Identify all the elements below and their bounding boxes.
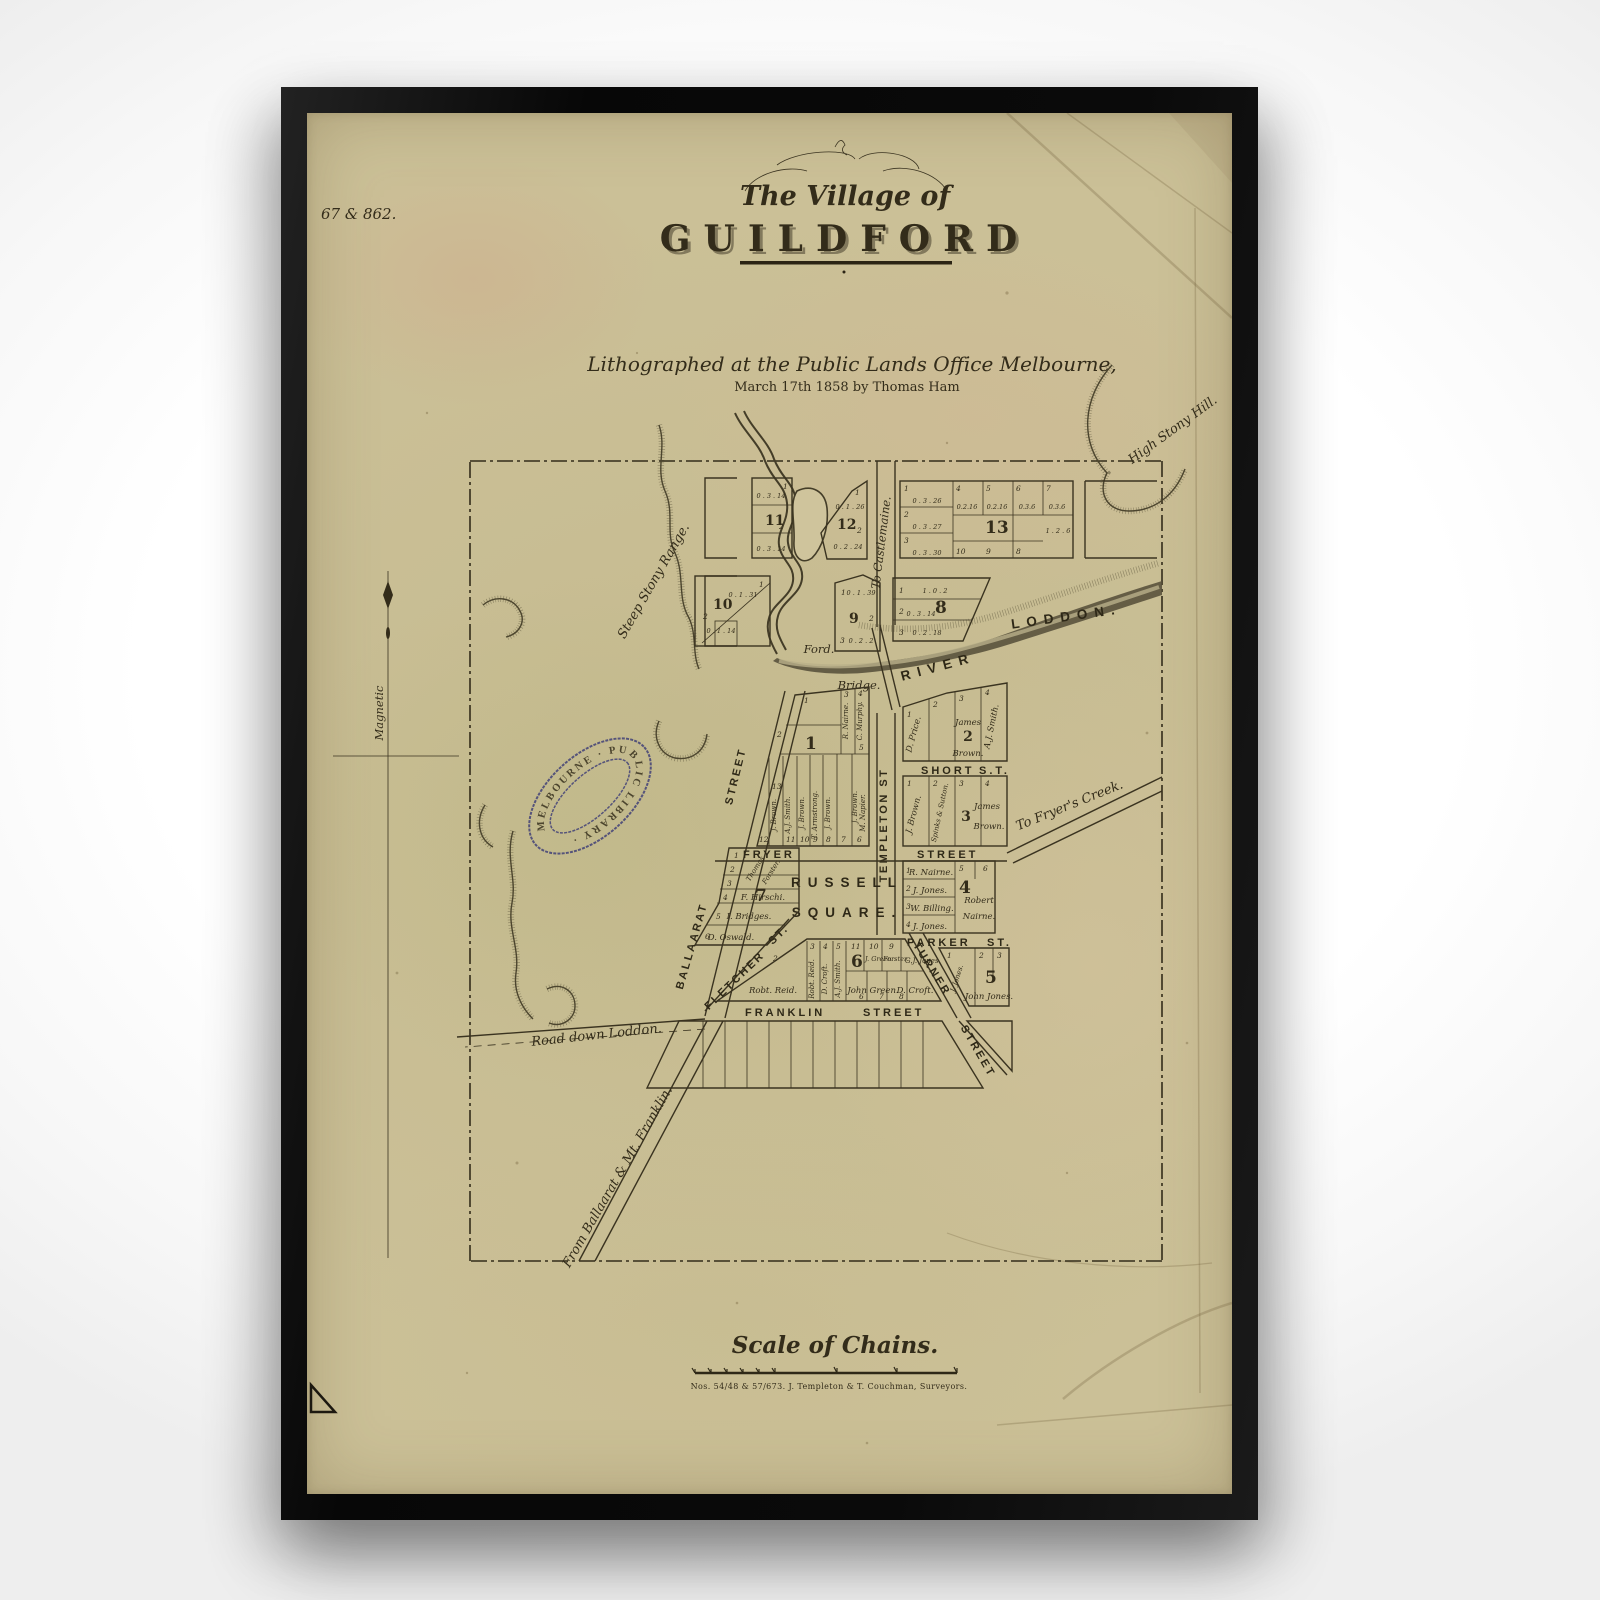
svg-text:0 . 1 . 14: 0 . 1 . 14 <box>707 627 736 635</box>
svg-text:John Jones.: John Jones. <box>963 992 1013 1002</box>
svg-text:6: 6 <box>1016 484 1021 493</box>
block-6-number: 6 <box>851 952 863 972</box>
svg-text:0.2.16: 0.2.16 <box>987 503 1008 511</box>
from-ballaarat-label: From Ballaarat & Mt. Franklin. <box>559 1084 676 1271</box>
svg-text:1: 1 <box>947 951 952 960</box>
svg-text:J. Jones.: J. Jones. <box>911 922 947 932</box>
block-9-number: 9 <box>849 611 859 627</box>
svg-text:J. Brown.: J. Brown. <box>770 799 778 833</box>
to-castlemaine-label: To Castlemaine. <box>868 495 893 589</box>
svg-text:13: 13 <box>772 782 782 791</box>
svg-text:I. Bridges.: I. Bridges. <box>726 912 772 922</box>
fletcher-street-abbr: ST. <box>766 922 791 947</box>
svg-text:J. Brown.: J. Brown. <box>824 797 832 831</box>
svg-text:0 . 2 . 24: 0 . 2 . 24 <box>834 543 863 551</box>
corner-registration-mark <box>311 1385 335 1412</box>
scale-note: Nos. 54/48 & 57/673. J. Templeton & T. C… <box>691 1382 968 1391</box>
hills <box>479 365 1185 1024</box>
svg-text:9: 9 <box>986 547 991 556</box>
svg-text:0 . 2 . 18: 0 . 2 . 18 <box>913 629 942 637</box>
templeton-street-label: TEMPLETON ST <box>878 768 890 883</box>
block-4-number: 4 <box>959 878 971 898</box>
block-12-number: 12 <box>837 517 856 533</box>
svg-text:Robert: Robert <box>963 896 994 906</box>
svg-text:2: 2 <box>868 614 874 623</box>
block-5-number: 5 <box>985 968 997 988</box>
svg-text:Brown.: Brown. <box>952 749 984 759</box>
svg-text:1: 1 <box>907 710 912 719</box>
block-4: 1 R. Nairne. 2 J. Jones. 3 W. Billing. 4… <box>903 861 995 933</box>
svg-text:W. Billing.: W. Billing. <box>910 904 953 914</box>
short-street-label: SHORT <box>921 765 975 777</box>
svg-text:J. Brown.: J. Brown. <box>798 797 806 831</box>
age-speckles <box>396 291 1189 1444</box>
magnetic-label: Magnetic <box>372 685 386 742</box>
svg-text:5: 5 <box>986 484 991 493</box>
svg-text:7: 7 <box>1046 484 1051 493</box>
svg-text:4: 4 <box>857 689 863 698</box>
svg-text:5: 5 <box>716 912 721 921</box>
high-stony-hill-label: High Stony Hill. <box>1125 393 1220 468</box>
to-fryers-creek-label: To Fryer's Creek. <box>1014 777 1125 834</box>
svg-text:5: 5 <box>859 743 864 752</box>
svg-text:0 . 3 . 26: 0 . 3 . 26 <box>913 497 942 505</box>
svg-text:F. Hirschi.: F. Hirschi. <box>740 893 785 903</box>
svg-text:James: James <box>953 718 982 728</box>
svg-text:0 . 1 . 39: 0 . 1 . 39 <box>847 589 876 597</box>
svg-text:Nairne.: Nairne. <box>962 912 996 922</box>
block-3: 1 2 3 4 J. Brown. Spinks & Sutton. 3 Jam… <box>903 776 1007 846</box>
ballaarat-street-label: BALLAARAT <box>674 901 710 990</box>
svg-text:11: 11 <box>851 942 861 951</box>
ford-label: Ford. <box>803 642 835 656</box>
svg-text:1: 1 <box>904 484 909 493</box>
svg-text:J. Brown.: J. Brown. <box>904 794 924 836</box>
svg-text:0.3.6: 0.3.6 <box>1049 503 1066 511</box>
svg-text:7: 7 <box>879 992 884 1001</box>
svg-text:0.2.16: 0.2.16 <box>957 503 978 511</box>
turner-street-word: STREET <box>958 1023 998 1080</box>
svg-text:4: 4 <box>905 920 911 929</box>
svg-text:2: 2 <box>978 951 984 960</box>
short-street-abbr: S.T. <box>979 765 1010 777</box>
svg-text:D. Croft.: D. Croft. <box>821 964 829 995</box>
svg-text:A.J. Smith.: A.J. Smith. <box>982 703 1001 750</box>
svg-text:4: 4 <box>822 942 828 951</box>
svg-text:3: 3 <box>899 628 904 637</box>
svg-text:2: 2 <box>903 510 909 519</box>
block-13: 1 0 . 3 . 26 2 0 . 3 . 27 3 0 . 3 . 30 4… <box>900 481 1157 558</box>
svg-text:1: 1 <box>841 588 846 597</box>
block-10-number: 10 <box>713 597 733 613</box>
svg-text:R. Nairne.: R. Nairne. <box>842 703 850 740</box>
imprint-line2: March 17th 1858 by Thomas Ham <box>734 380 960 395</box>
svg-text:1: 1 <box>899 586 904 595</box>
svg-text:3: 3 <box>810 942 815 951</box>
block-1-number: 1 <box>805 734 817 754</box>
svg-text:0 . 2 . 2: 0 . 2 . 2 <box>849 637 874 645</box>
map-paper: 67 & 862. The Village of GUILDFORD GUILD… <box>307 113 1232 1494</box>
block-1: 1 2 3 4 5 1 R. Nairne. C. Murphy. 12 13 … <box>757 687 869 846</box>
svg-text:M. Napier.: M. Napier. <box>859 794 867 833</box>
russell-square-label-1: RUSSELL <box>791 875 903 890</box>
svg-text:2: 2 <box>778 522 784 531</box>
svg-text:8: 8 <box>1016 547 1021 556</box>
svg-text:1: 1 <box>759 580 764 589</box>
svg-text:2: 2 <box>776 730 782 739</box>
block-10: 1 0 . 1 . 31 10 2 0 . 1 . 14 <box>695 576 770 646</box>
title-rule <box>740 261 952 265</box>
svg-text:6: 6 <box>983 864 988 873</box>
svg-text:3: 3 <box>727 879 732 888</box>
photo-stage: 67 & 862. The Village of GUILDFORD GUILD… <box>0 0 1600 1600</box>
svg-text:0 . 3 . 30: 0 . 3 . 30 <box>913 549 942 557</box>
svg-text:T. Armstrong.: T. Armstrong. <box>811 791 819 839</box>
svg-text:1 . 0 . 2: 1 . 0 . 2 <box>923 587 948 595</box>
title-block: The Village of GUILDFORD GUILDFORD Litho… <box>586 140 1116 395</box>
imprint-line1: Lithographed at the Public Lands Office … <box>586 352 1116 376</box>
svg-text:11: 11 <box>786 835 796 844</box>
svg-text:2: 2 <box>932 779 938 788</box>
svg-text:A.J. Smith.: A.J. Smith. <box>834 960 842 998</box>
block-2: 1 2 3 4 D. Price. James 2 Brown. A.J. Sm… <box>903 683 1007 761</box>
scale-title: Scale of Chains. <box>732 1332 938 1359</box>
svg-text:0.3.6: 0.3.6 <box>1019 503 1036 511</box>
svg-text:2: 2 <box>932 700 938 709</box>
loddon-label: LODDON. <box>1010 601 1122 631</box>
svg-text:1: 1 <box>783 482 788 491</box>
svg-text:G.J. Jones.: G.J. Jones. <box>905 957 941 965</box>
svg-text:7: 7 <box>841 835 846 844</box>
franklin-street-word: STREET <box>863 1007 924 1019</box>
svg-text:4: 4 <box>722 893 728 902</box>
fletcher-street-label: FLETCHER <box>702 949 767 1012</box>
svg-text:C. Murphy.: C. Murphy. <box>856 702 864 741</box>
parker-street-abbr: ST. <box>987 937 1012 949</box>
svg-text:2: 2 <box>729 865 735 874</box>
svg-text:Robt. Reid.: Robt. Reid. <box>808 959 816 1000</box>
svg-text:2: 2 <box>905 884 911 893</box>
svg-text:4: 4 <box>984 688 990 697</box>
ballaarat-street-word: STREET <box>723 746 749 806</box>
svg-text:Brown.: Brown. <box>973 822 1005 832</box>
svg-text:2: 2 <box>856 526 862 535</box>
svg-text:Robt. Reid.: Robt. Reid. <box>748 986 797 996</box>
svg-text:8: 8 <box>899 992 904 1001</box>
svg-text:10: 10 <box>956 547 966 556</box>
svg-text:1: 1 <box>855 488 860 497</box>
svg-text:9: 9 <box>889 942 894 951</box>
svg-text:3: 3 <box>844 690 849 699</box>
russell-square-label-2: SQUARE. <box>792 905 903 920</box>
svg-text:D. Price.: D. Price. <box>904 715 923 754</box>
svg-text:1: 1 <box>804 696 809 705</box>
map-svg: 67 & 862. The Village of GUILDFORD GUILD… <box>307 113 1232 1494</box>
svg-text:2: 2 <box>772 954 778 963</box>
svg-text:10: 10 <box>869 942 879 951</box>
svg-text:12: 12 <box>759 835 769 844</box>
svg-text:4: 4 <box>955 484 961 493</box>
svg-text:3: 3 <box>904 536 909 545</box>
svg-text:3: 3 <box>997 951 1002 960</box>
svg-text:John Green.: John Green. <box>845 986 898 996</box>
svg-text:3: 3 <box>959 694 964 703</box>
svg-text:4: 4 <box>984 779 990 788</box>
svg-text:D. Oswald.: D. Oswald. <box>707 933 754 943</box>
svg-text:5: 5 <box>836 942 841 951</box>
block-2-number: 2 <box>963 729 973 745</box>
svg-text:J. Jones.: J. Jones. <box>948 964 965 995</box>
svg-text:0 . 1 . 31: 0 . 1 . 31 <box>729 591 758 599</box>
svg-text:1 . 2 . 6: 1 . 2 . 6 <box>1046 527 1071 535</box>
svg-text:James: James <box>972 802 1001 812</box>
svg-text:5: 5 <box>959 864 964 873</box>
picture-frame: 67 & 862. The Village of GUILDFORD GUILD… <box>281 87 1258 1520</box>
block-13-number: 13 <box>985 518 1009 538</box>
block-3-number: 3 <box>961 809 971 825</box>
plate-number: 67 & 862. <box>321 205 396 223</box>
block-5: 1 J. Jones. 2 3 5 John Jones. <box>939 948 1013 1006</box>
svg-text:0 . 3 . 14: 0 . 3 . 14 <box>757 545 786 553</box>
road-down-loddon-label: Road down Loddon. <box>530 1021 663 1050</box>
svg-text:6: 6 <box>857 835 862 844</box>
svg-text:3: 3 <box>840 636 845 645</box>
svg-text:3: 3 <box>959 779 964 788</box>
svg-text:0 . 3 . 14: 0 . 3 . 14 <box>757 492 786 500</box>
map-title: GUILDFORD <box>660 218 1031 260</box>
svg-text:0 . 1 . 26: 0 . 1 . 26 <box>836 503 865 511</box>
block-8-number: 8 <box>935 598 947 618</box>
fryer-street-label: FRYER <box>743 849 795 861</box>
fryer-street-word: STREET <box>917 849 978 861</box>
svg-text:10: 10 <box>800 835 810 844</box>
svg-text:R. Nairne.: R. Nairne. <box>908 868 953 878</box>
svg-text:0 . 3 . 14: 0 . 3 . 14 <box>907 610 936 618</box>
magnetic-north-arrow: Magnetic <box>333 571 459 1258</box>
map-title-script: The Village of <box>740 181 955 212</box>
svg-text:8: 8 <box>826 835 831 844</box>
svg-text:Spinks & Sutton.: Spinks & Sutton. <box>930 782 950 843</box>
library-stamp: MELBOURNE · PUBLIC LIBRARY · <box>508 717 671 876</box>
scale-of-chains: Scale of Chains. Nos. 54/48 & 57/673. J.… <box>691 1332 968 1391</box>
svg-text:J. Jones.: J. Jones. <box>911 886 947 896</box>
svg-text:J. Brown.: J. Brown. <box>851 791 859 825</box>
svg-text:A.J. Smith.: A.J. Smith. <box>784 796 792 834</box>
svg-text:1: 1 <box>907 779 912 788</box>
svg-text:2: 2 <box>702 612 708 621</box>
franklin-street-label: FRANKLIN <box>745 1007 825 1019</box>
svg-text:2: 2 <box>898 607 904 616</box>
svg-text:1: 1 <box>734 851 739 860</box>
svg-text:0 . 3 . 27: 0 . 3 . 27 <box>913 523 943 531</box>
svg-text:6: 6 <box>859 992 864 1001</box>
